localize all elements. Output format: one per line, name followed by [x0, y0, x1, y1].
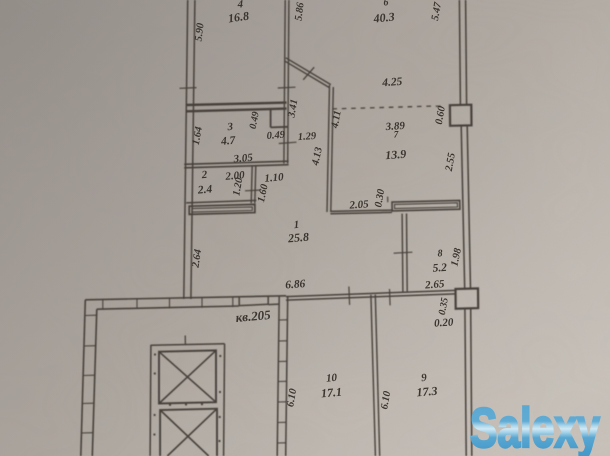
- svg-text:10: 10: [326, 372, 339, 385]
- svg-text:2.4: 2.4: [196, 183, 213, 196]
- svg-text:25.8: 25.8: [286, 230, 309, 246]
- svg-text:5.90: 5.90: [193, 22, 206, 42]
- svg-text:40.3: 40.3: [372, 9, 395, 25]
- svg-text:17.1: 17.1: [320, 385, 342, 401]
- svg-text:16.8: 16.8: [227, 9, 250, 26]
- svg-text:6.86: 6.86: [285, 278, 306, 291]
- svg-text:6: 6: [384, 0, 389, 9]
- svg-text:5.2: 5.2: [432, 262, 447, 275]
- svg-text:4.25: 4.25: [381, 76, 403, 89]
- svg-text:1.10: 1.10: [264, 171, 285, 185]
- svg-text:1.29: 1.29: [297, 131, 317, 143]
- svg-text:0.49: 0.49: [266, 130, 286, 142]
- svg-text:0.20: 0.20: [434, 316, 455, 329]
- svg-text:1: 1: [293, 219, 300, 231]
- svg-text:кв.205: кв.205: [235, 307, 272, 325]
- svg-text:Salexy: Salexy: [470, 396, 600, 456]
- svg-text:17.3: 17.3: [416, 384, 438, 400]
- svg-text:13.9: 13.9: [385, 147, 407, 162]
- svg-text:8: 8: [437, 248, 443, 259]
- svg-text:4.7: 4.7: [220, 135, 238, 148]
- svg-text:5.86: 5.86: [293, 1, 306, 21]
- svg-text:7: 7: [394, 130, 399, 140]
- svg-text:2.05: 2.05: [348, 198, 370, 211]
- svg-text:3.05: 3.05: [232, 152, 254, 166]
- svg-text:2.65: 2.65: [424, 278, 446, 291]
